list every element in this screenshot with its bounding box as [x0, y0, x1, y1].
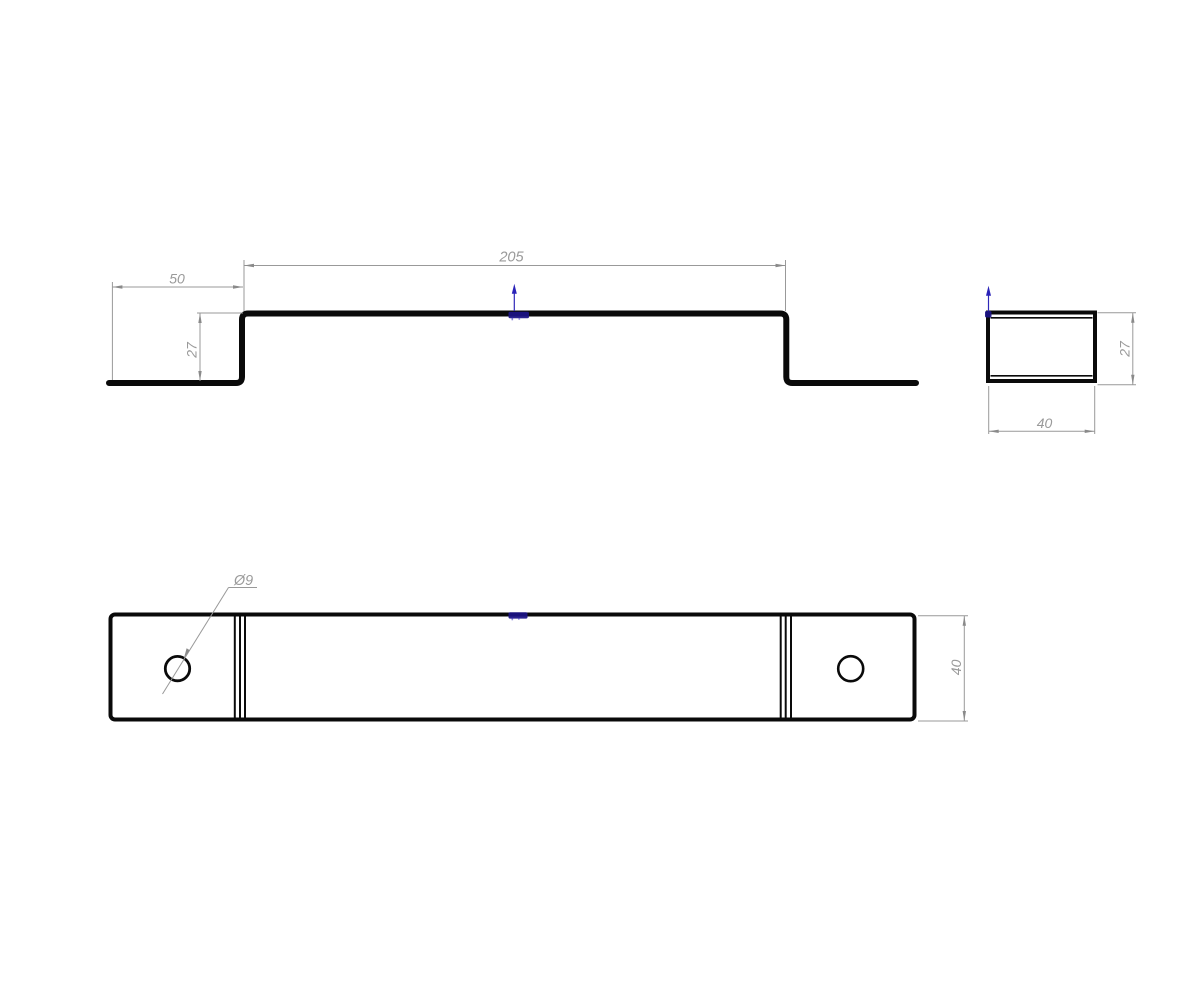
svg-text:205: 205: [498, 250, 524, 266]
svg-text:40: 40: [1037, 415, 1053, 431]
svg-text:27: 27: [184, 341, 200, 359]
svg-text:50: 50: [169, 271, 185, 287]
svg-text:40: 40: [948, 659, 964, 675]
svg-text:27: 27: [1117, 340, 1133, 358]
svg-text:Ø9: Ø9: [233, 573, 253, 589]
